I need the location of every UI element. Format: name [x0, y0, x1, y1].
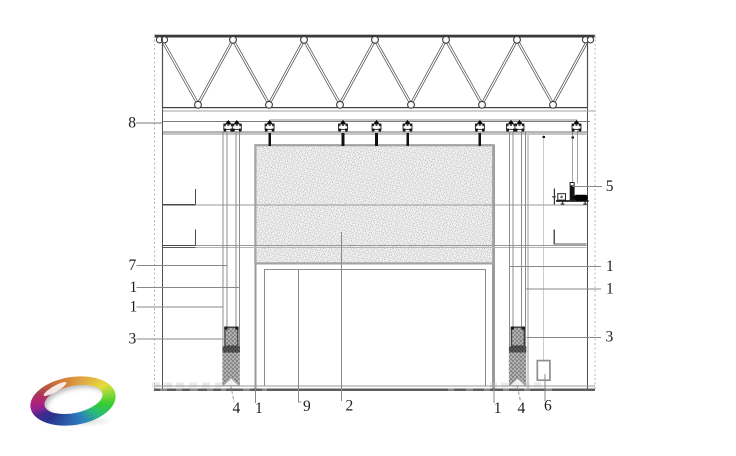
svg-text:5: 5: [606, 178, 614, 195]
svg-text:1: 1: [606, 258, 614, 275]
svg-text:1: 1: [606, 281, 614, 298]
svg-text:1: 1: [130, 299, 138, 316]
svg-text:8: 8: [128, 115, 136, 132]
svg-text:1: 1: [130, 279, 138, 296]
svg-text:3: 3: [129, 331, 137, 348]
svg-text:6: 6: [544, 398, 552, 415]
svg-text:1: 1: [255, 400, 263, 417]
svg-text:9: 9: [303, 398, 311, 415]
svg-text:7: 7: [129, 257, 137, 274]
svg-text:3: 3: [606, 329, 614, 346]
svg-text:4: 4: [518, 400, 526, 417]
svg-text:1: 1: [494, 400, 502, 417]
svg-text:4: 4: [233, 400, 241, 417]
svg-text:2: 2: [346, 398, 354, 415]
